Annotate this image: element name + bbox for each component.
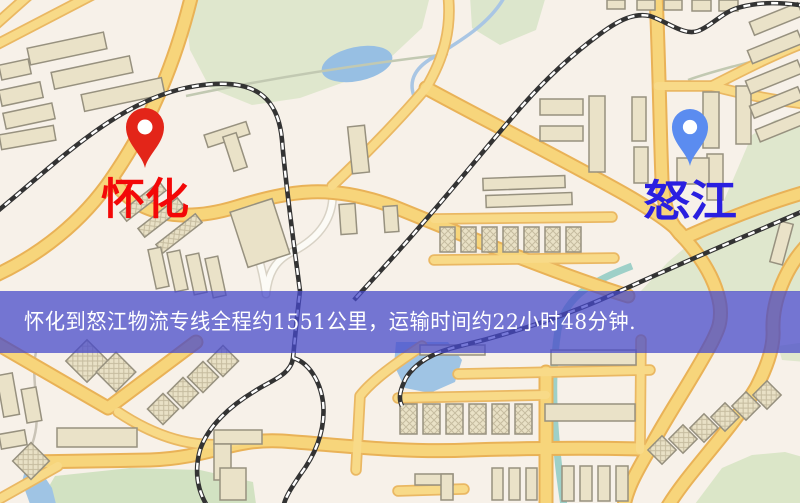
map-image: 怀化到怒江物流专线全程约1551公里，运输时间约22小时48分钟. 怀化 怒江 bbox=[0, 0, 800, 503]
map-canvas: 怀化到怒江物流专线全程约1551公里，运输时间约22小时48分钟. 怀化 怒江 bbox=[0, 0, 800, 503]
origin-label: 怀化 bbox=[101, 176, 189, 224]
destination-label: 怒江 bbox=[643, 178, 737, 226]
banner-text: 怀化到怒江物流专线全程约1551公里，运输时间约22小时48分钟. bbox=[24, 310, 636, 335]
info-banner: 怀化到怒江物流专线全程约1551公里，运输时间约22小时48分钟. bbox=[0, 291, 800, 353]
